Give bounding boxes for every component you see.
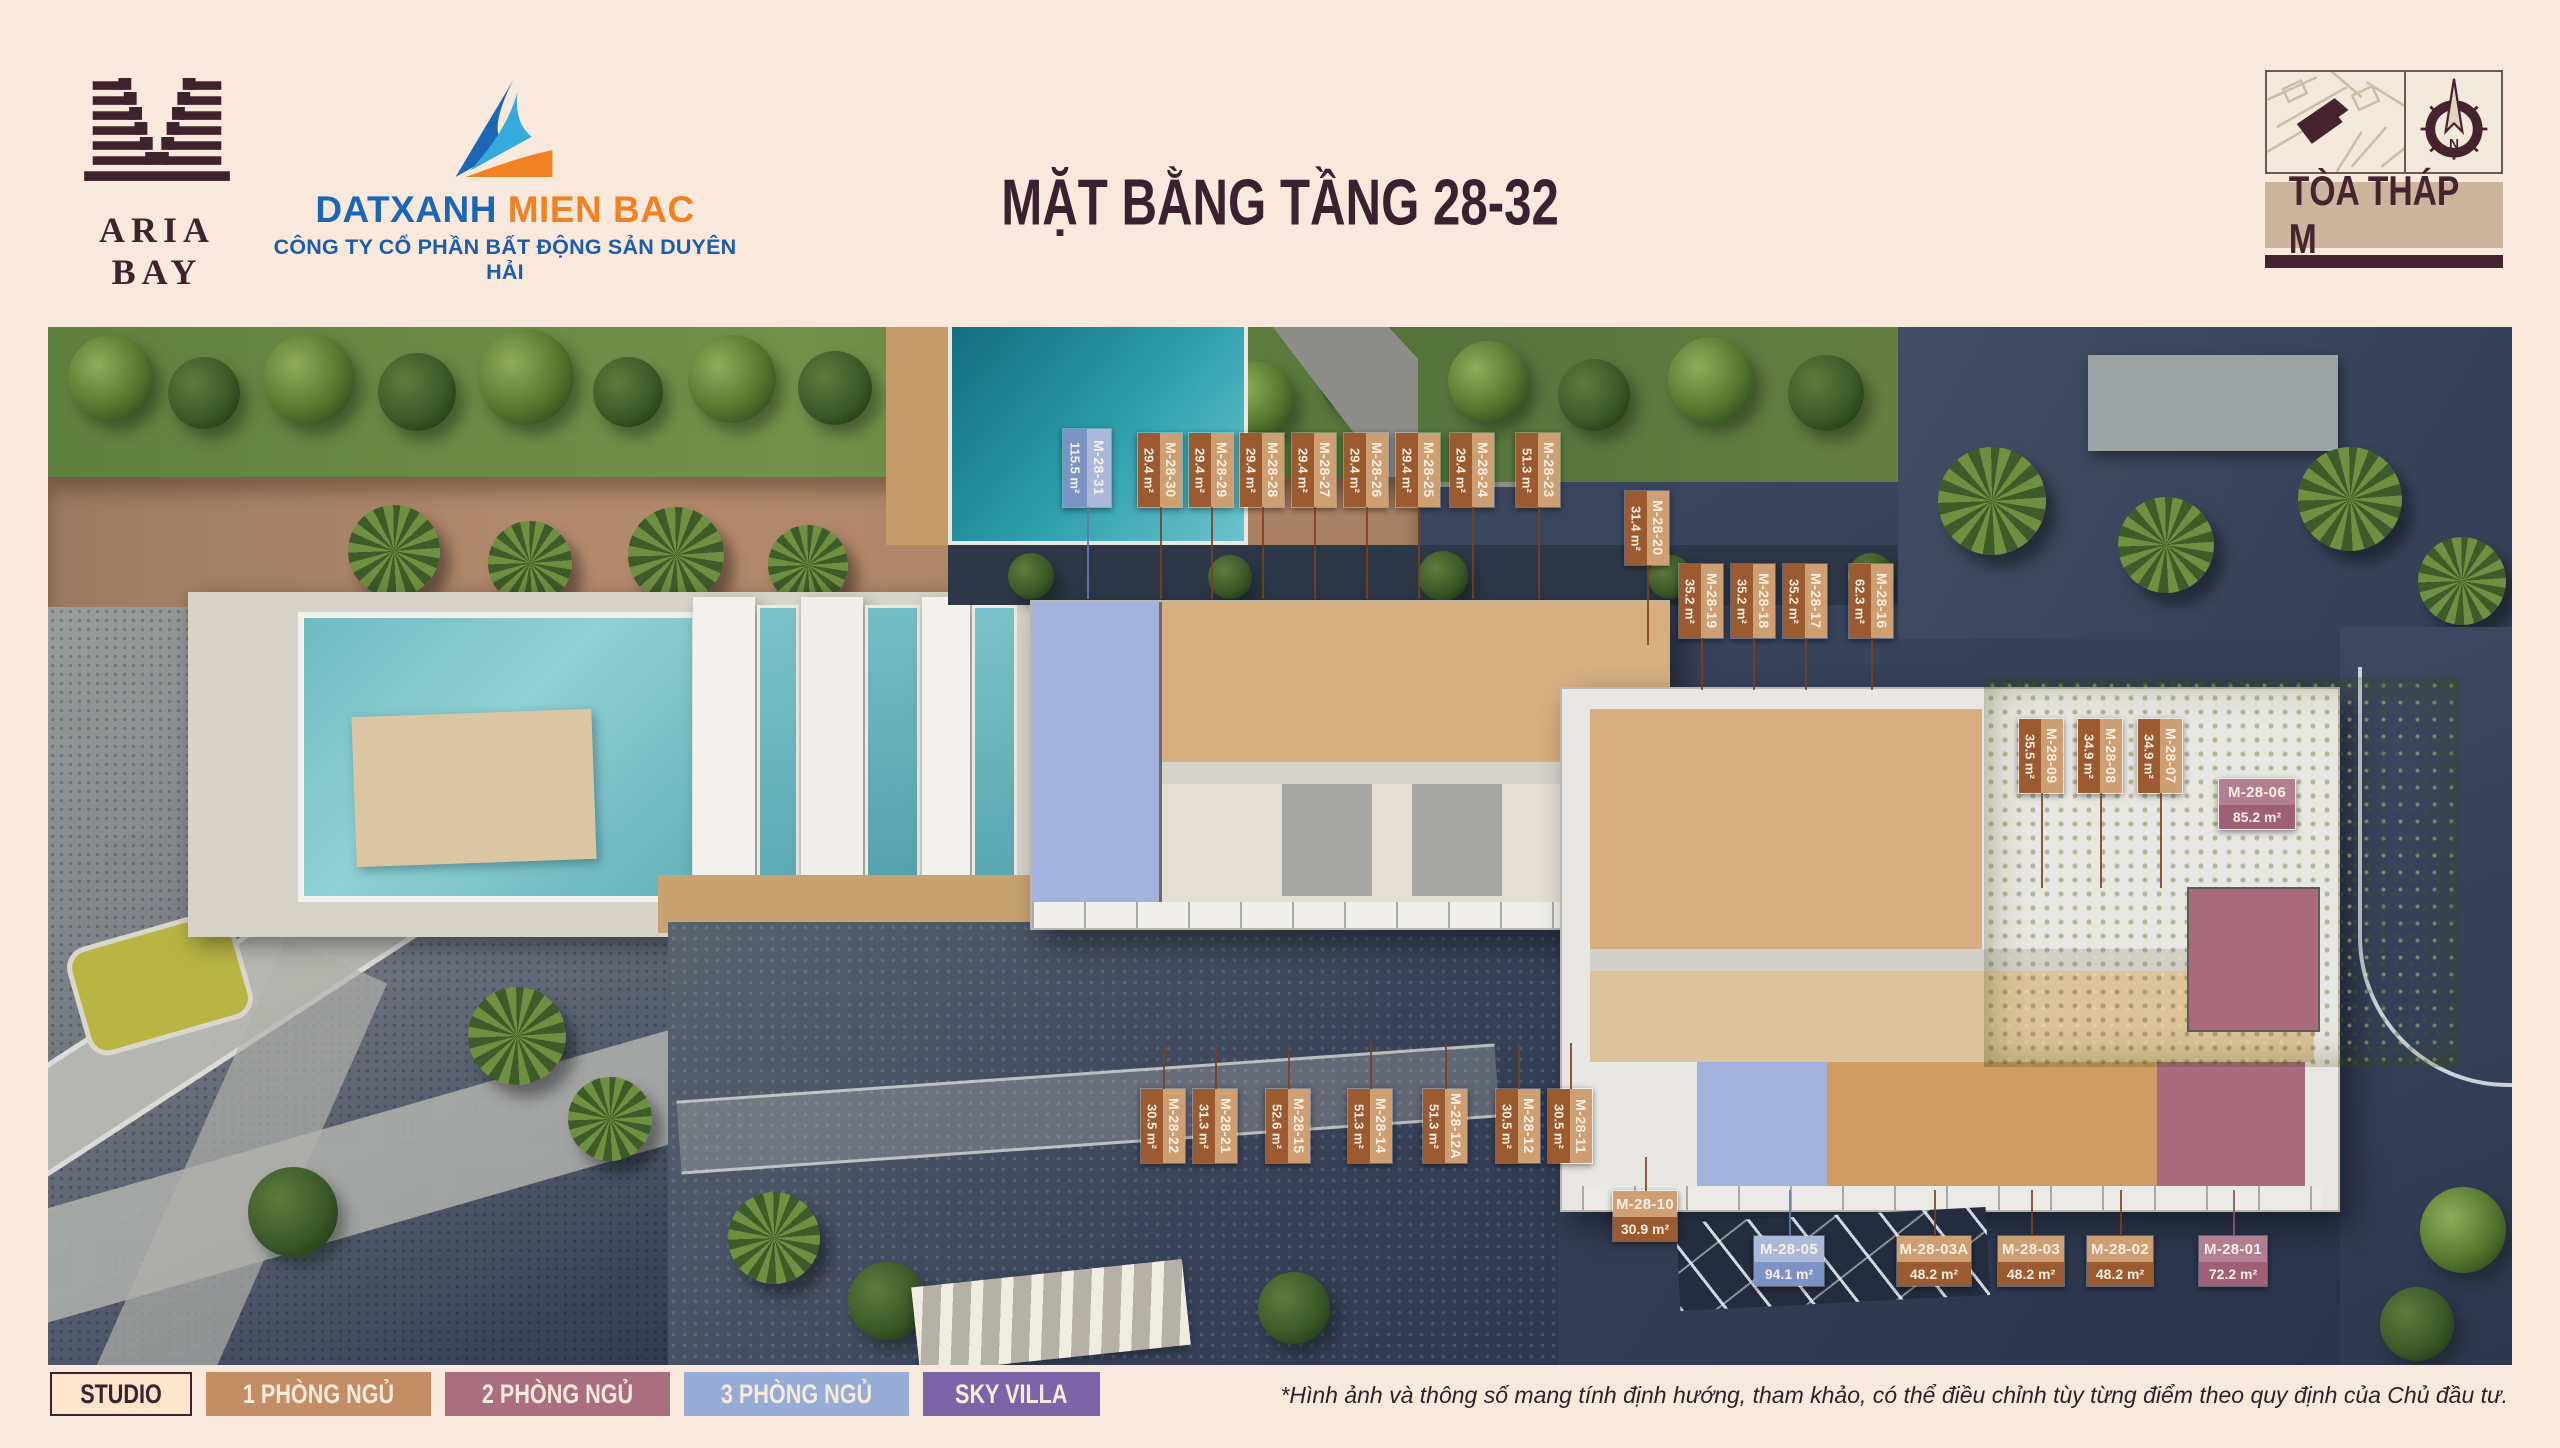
legend: STUDIO 1 PHÒNG NGỦ 2 PHÒNG NGỦ 3 PHÒNG N… (50, 1372, 1100, 1416)
legend-item-studio: STUDIO (50, 1372, 192, 1416)
agency-subtitle: CÔNG TY CỔ PHẦN BẤT ĐỘNG SẢN DUYÊN HẢI (255, 235, 755, 285)
unit-code: M-28-06 (2219, 779, 2295, 805)
unit-label-m-28-28: 29.4 m² M-28-28 (1239, 432, 1285, 508)
unit-area: 35.2 m² (1679, 564, 1701, 638)
unit-code: M-28-18 (1753, 564, 1775, 638)
unit-label-m-28-15: 52.6 m² M-28-15 (1265, 1088, 1311, 1164)
unit-area: 29.4 m² (1450, 433, 1472, 507)
unit-label-m-28-06: M-28-06 85.2 m² (2218, 778, 2296, 830)
leader-line (1087, 507, 1089, 599)
compass-letter: N (2449, 135, 2459, 151)
unit-code: M-28-01 (2199, 1236, 2267, 1262)
unit-area: 34.9 m² (2078, 719, 2100, 793)
unit-code: M-28-09 (2041, 719, 2063, 793)
unit-fill-3br-m2805 (1697, 1062, 1827, 1192)
unit-code: M-28-20 (1647, 491, 1669, 565)
unit-label-m-28-08: 34.9 m² M-28-08 (2077, 718, 2123, 794)
site-plan-icon (2267, 72, 2406, 172)
leader-line (1215, 1043, 1217, 1089)
legend-label: 3 PHÒNG NGỦ (721, 1379, 872, 1410)
unit-label-m-28-05: M-28-05 94.1 m² (1753, 1235, 1825, 1287)
unit-area: 35.2 m² (1731, 564, 1753, 638)
unit-code: M-28-16 (1871, 564, 1893, 638)
unit-label-m-28-20: 31.4 m² M-28-20 (1624, 490, 1670, 566)
unit-code: M-28-03A (1897, 1236, 1971, 1262)
lap-pool (757, 605, 799, 900)
leader-line (1288, 1043, 1290, 1089)
tree (478, 329, 574, 425)
leader-line (1701, 638, 1703, 690)
main-pool (298, 612, 698, 902)
unit-code: M-28-15 (1288, 1089, 1310, 1163)
leader-line (1805, 638, 1807, 690)
palm-tree (468, 987, 566, 1085)
unit-code: M-28-30 (1160, 433, 1182, 507)
unit-code: M-28-08 (2100, 719, 2122, 793)
lap-pool (865, 605, 920, 900)
leader-line (1871, 638, 1873, 690)
unit-code: M-28-02 (2087, 1236, 2153, 1262)
cabana (801, 597, 863, 907)
unit-area: 30.5 m² (1496, 1089, 1518, 1163)
unit-area: 29.4 m² (1240, 433, 1262, 507)
leader-line (1160, 507, 1162, 599)
leader-line (1753, 638, 1755, 690)
leader-line (2031, 1190, 2033, 1236)
unit-label-m-28-09: 35.5 m² M-28-09 (2018, 718, 2064, 794)
unit-code: M-28-29 (1211, 433, 1233, 507)
elevator-core (1282, 784, 1372, 896)
unit-label-m-28-14: 51.3 m² M-28-14 (1347, 1088, 1393, 1164)
unit-label-m-28-11: 30.5 m² M-28-11 (1547, 1088, 1593, 1164)
cabana (693, 597, 755, 907)
cabana (922, 597, 970, 907)
unit-code: M-28-28 (1262, 433, 1284, 507)
unit-label-m-28-17: 35.2 m² M-28-17 (1782, 563, 1828, 639)
leader-line (1163, 1043, 1165, 1089)
unit-label-m-28-12a: 51.3 m² M-28-12A (1422, 1088, 1468, 1164)
tree (688, 335, 776, 423)
paved-terrace-ne (1898, 327, 2512, 639)
unit-code: M-28-03 (1998, 1236, 2064, 1262)
leader-line (2041, 793, 2043, 888)
unit-area: 51.3 m² (1348, 1089, 1370, 1163)
palm-tree (1938, 447, 2046, 555)
tree (1668, 337, 1754, 423)
unit-area: 35.5 m² (2019, 719, 2041, 793)
bush (1208, 555, 1252, 599)
unit-fill-2br-m2801 (2157, 1062, 2305, 1192)
unit-area: 34.9 m² (2138, 719, 2160, 793)
tree (1558, 359, 1630, 431)
unit-code: M-28-14 (1370, 1089, 1392, 1163)
unit-code: M-28-21 (1215, 1089, 1237, 1163)
legend-label: STUDIO (80, 1379, 162, 1410)
unit-label-m-28-03: M-28-03 48.2 m² (1997, 1235, 2065, 1287)
leader-line (1934, 1190, 1936, 1236)
tree (2380, 1287, 2454, 1361)
unit-area: 29.4 m² (1189, 433, 1211, 507)
unit-label-m-28-10: M-28-10 30.9 m² (1612, 1190, 1678, 1242)
leader-line (1211, 507, 1213, 599)
unit-label-m-28-23: 51.3 m² M-28-23 (1515, 432, 1561, 508)
legend-item-2br: 2 PHÒNG NGỦ (445, 1372, 670, 1416)
unit-area: 29.4 m² (1138, 433, 1160, 507)
waterside-deck (886, 327, 948, 545)
unit-fill-3br-m2831 (1032, 602, 1162, 902)
unit-code: M-28-05 (1754, 1236, 1824, 1262)
unit-label-m-28-21: 31.3 m² M-28-21 (1192, 1088, 1238, 1164)
legend-label: 1 PHÒNG NGỦ (243, 1379, 394, 1410)
unit-label-m-28-18: 35.2 m² M-28-18 (1730, 563, 1776, 639)
leader-line (1262, 507, 1264, 599)
unit-label-m-28-12: 30.5 m² M-28-12 (1495, 1088, 1541, 1164)
unit-code: M-28-19 (1701, 564, 1723, 638)
tree (248, 1167, 338, 1257)
tree (798, 351, 872, 425)
unit-label-m-28-26: 29.4 m² M-28-26 (1343, 432, 1389, 508)
compass-icon: N (2406, 72, 2501, 172)
leader-line (2120, 1190, 2122, 1236)
tree (378, 353, 456, 431)
leader-line (1538, 507, 1540, 599)
leader-line (1570, 1043, 1572, 1089)
palm-tree (2418, 537, 2506, 625)
legend-item-3br: 3 PHÒNG NGỦ (684, 1372, 909, 1416)
bush (1418, 551, 1468, 601)
unit-area: 29.4 m² (1344, 433, 1366, 507)
unit-label-m-28-31: 115.5 m² M-28-31 (1062, 428, 1112, 508)
tree (2420, 1187, 2506, 1273)
unit-label-m-28-07: 34.9 m² M-28-07 (2137, 718, 2183, 794)
unit-code: M-28-11 (1570, 1089, 1592, 1163)
unit-code: M-28-26 (1366, 433, 1388, 507)
unit-code: M-28-10 (1613, 1191, 1677, 1217)
unit-area: 48.2 m² (2087, 1262, 2153, 1286)
unit-area: 94.1 m² (1754, 1262, 1824, 1286)
unit-label-m-28-24: 29.4 m² M-28-24 (1449, 432, 1495, 508)
unit-area: 30.5 m² (1141, 1089, 1163, 1163)
unit-area: 115.5 m² (1063, 429, 1087, 507)
leader-line (1647, 565, 1649, 645)
unit-code: M-28-31 (1087, 429, 1111, 507)
leader-line (1366, 507, 1368, 599)
page-title: MẶT BẰNG TẦNG 28-32 (0, 168, 2560, 237)
unit-code: M-28-17 (1805, 564, 1827, 638)
leader-line (2233, 1190, 2235, 1236)
palm-tree (2298, 447, 2402, 551)
leader-line (2100, 793, 2102, 888)
unit-label-m-28-03a: M-28-03A 48.2 m² (1896, 1235, 1972, 1287)
unit-area: 30.9 m² (1613, 1217, 1677, 1241)
minimap-box: N (2265, 70, 2503, 174)
unit-code: M-28-12 (1518, 1089, 1540, 1163)
unit-code: M-28-23 (1538, 433, 1560, 507)
bush (1008, 553, 1054, 599)
unit-area: 29.4 m² (1292, 433, 1314, 507)
unit-area: 48.2 m² (1998, 1262, 2064, 1286)
unit-label-m-28-25: 29.4 m² M-28-25 (1395, 432, 1441, 508)
unit-label-m-28-02: M-28-02 48.2 m² (2086, 1235, 2154, 1287)
lap-pool (972, 605, 1017, 900)
unit-label-m-28-29: 29.4 m² M-28-29 (1188, 432, 1234, 508)
unit-label-m-28-30: 29.4 m² M-28-30 (1137, 432, 1183, 508)
unit-code: M-28-24 (1472, 433, 1494, 507)
leader-line (1645, 1157, 1647, 1191)
unit-area: 31.4 m² (1625, 491, 1647, 565)
leader-line (1370, 1043, 1372, 1089)
unit-fill-1br-row (1827, 1062, 2157, 1192)
unit-label-m-28-19: 35.2 m² M-28-19 (1678, 563, 1724, 639)
palm-tree (728, 1192, 820, 1284)
unit-area: 72.2 m² (2199, 1262, 2267, 1286)
unit-area: 48.2 m² (1897, 1262, 1971, 1286)
page: { "page": { "background": "#f9e9dc", "ac… (0, 0, 2560, 1448)
palm-tree (568, 1077, 652, 1161)
unit-area: 31.3 m² (1193, 1089, 1215, 1163)
datxanh-triangle-icon (453, 78, 557, 178)
unit-code: M-28-07 (2160, 719, 2182, 793)
leader-line (1445, 1043, 1447, 1089)
unit-label-m-28-16: 62.3 m² M-28-16 (1848, 563, 1894, 639)
palm-tree (628, 507, 724, 603)
unit-area: 35.2 m² (1783, 564, 1805, 638)
unit-label-m-28-22: 30.5 m² M-28-22 (1140, 1088, 1186, 1164)
balcony-strip (1582, 1186, 2322, 1210)
palm-tree (2118, 497, 2214, 593)
tower-name-banner: TÒA THÁP M (2265, 182, 2503, 248)
unit-code: M-28-25 (1418, 433, 1440, 507)
unit-label-m-28-27: 29.4 m² M-28-27 (1291, 432, 1337, 508)
leader-line (1472, 507, 1474, 599)
elevator-core (1412, 784, 1502, 896)
unit-label-m-28-01: M-28-01 72.2 m² (2198, 1235, 2268, 1287)
tree (1788, 355, 1864, 431)
concrete-pad (2088, 355, 2338, 451)
disclaimer-text: *Hình ảnh và thông số mang tính định hướ… (1280, 1382, 2508, 1409)
leader-line (1314, 507, 1316, 599)
rooms-block-north (1590, 709, 1982, 949)
tree (1258, 1272, 1330, 1344)
legend-item-1br: 1 PHÒNG NGỦ (206, 1372, 431, 1416)
pool-island-deck (351, 709, 596, 867)
leader-line (1518, 1043, 1520, 1089)
tree (1448, 341, 1528, 421)
unit-code: M-28-27 (1314, 433, 1336, 507)
unit-area: 62.3 m² (1849, 564, 1871, 638)
tower-badge: N TÒA THÁP M (2265, 70, 2503, 268)
unit-area: 52.6 m² (1266, 1089, 1288, 1163)
unit-area: 85.2 m² (2219, 805, 2295, 829)
unit-code: M-28-22 (1163, 1089, 1185, 1163)
tree (68, 335, 154, 421)
unit-area: 29.4 m² (1396, 433, 1418, 507)
legend-label: SKY VILLA (955, 1379, 1067, 1410)
tree (593, 357, 663, 427)
legend-item-sky-villa: SKY VILLA (923, 1372, 1100, 1416)
unit-area: 51.3 m² (1516, 433, 1538, 507)
palm-tree (348, 505, 440, 597)
leader-line (1418, 507, 1420, 599)
tree (263, 333, 355, 425)
leader-line (1789, 1190, 1791, 1236)
tree (168, 357, 240, 429)
tower-name: TÒA THÁP M (2289, 167, 2479, 263)
unit-area: 30.5 m² (1548, 1089, 1570, 1163)
legend-label: 2 PHÒNG NGỦ (482, 1379, 633, 1410)
unit-area: 51.3 m² (1423, 1089, 1445, 1163)
unit-fill-2br-m2806 (2187, 887, 2320, 1032)
unit-code: M-28-12A (1445, 1089, 1467, 1163)
floorplan-image: 115.5 m² M-28-31 29.4 m² M-28-30 29.4 m²… (48, 327, 2512, 1365)
leader-line (2160, 793, 2162, 888)
